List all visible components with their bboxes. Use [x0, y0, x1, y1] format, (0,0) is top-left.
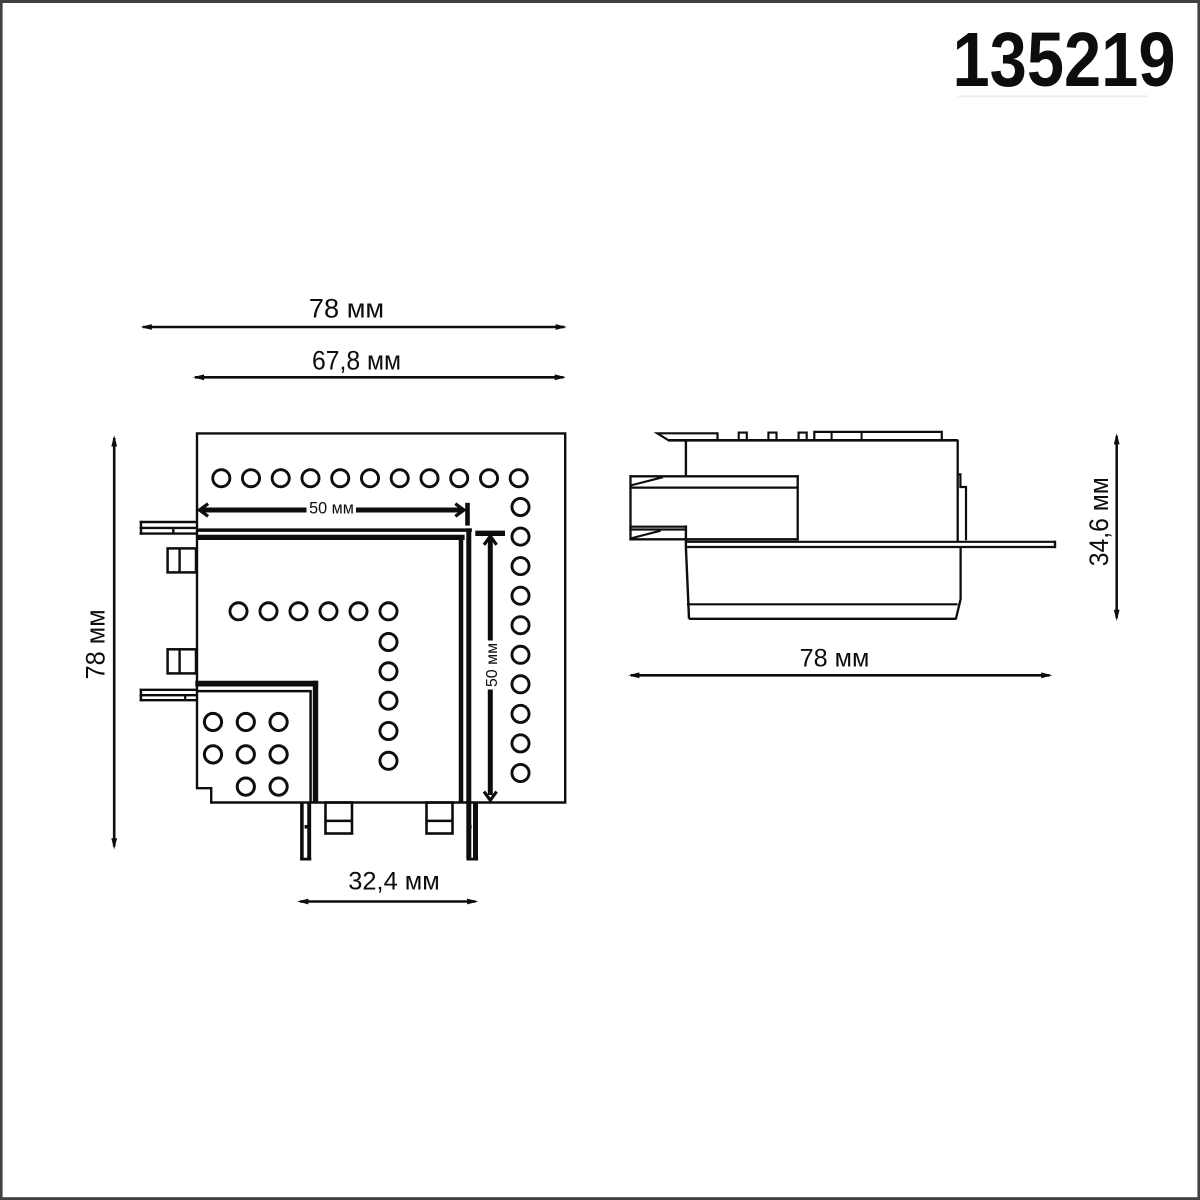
- svg-text:135219: 135219: [953, 17, 1176, 103]
- svg-text:50 мм: 50 мм: [484, 643, 501, 687]
- svg-text:67,8 мм: 67,8 мм: [312, 344, 401, 375]
- svg-text:78 мм: 78 мм: [80, 609, 111, 679]
- svg-text:34,6 мм: 34,6 мм: [1084, 477, 1114, 566]
- svg-text:32,4 мм: 32,4 мм: [348, 868, 439, 896]
- svg-text:78 мм: 78 мм: [800, 644, 870, 672]
- svg-text:78 мм: 78 мм: [309, 293, 384, 324]
- svg-text:50 мм: 50 мм: [309, 500, 354, 518]
